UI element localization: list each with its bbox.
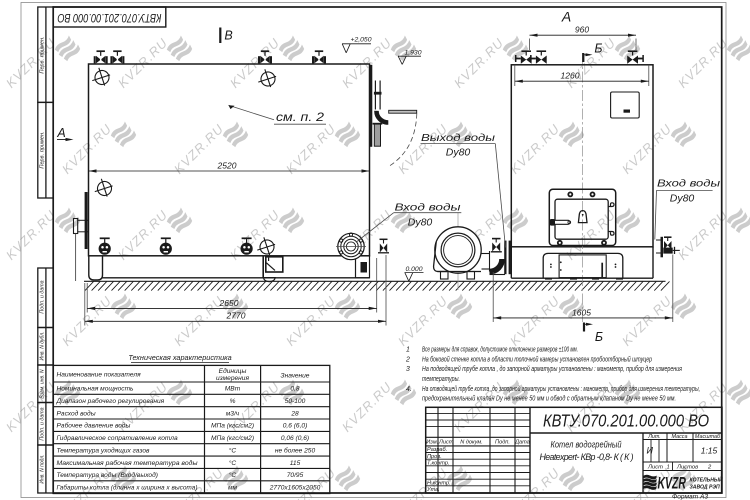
svg-text:%: %	[230, 398, 236, 405]
svg-text:Подп.: Подп.	[495, 440, 510, 446]
svg-text:0.000: 0.000	[405, 266, 422, 273]
svg-text:28: 28	[290, 410, 299, 417]
svg-text:960: 960	[575, 25, 589, 35]
svg-text:Единицы: Единицы	[219, 367, 247, 375]
svg-text:Лит.: Лит.	[647, 434, 661, 440]
svg-text:КВТУ.070.201.00.000 ВО: КВТУ.070.201.00.000 ВО	[57, 11, 161, 23]
svg-text:Dy80: Dy80	[408, 217, 433, 229]
svg-text:м3/ч: м3/ч	[226, 410, 240, 417]
svg-text:Диапазон рабочего регулировани: Диапазон рабочего регулирования	[56, 397, 165, 405]
svg-text:Масса: Масса	[672, 434, 688, 440]
svg-text:температуры.: температуры.	[422, 376, 460, 383]
svg-text:2: 2	[405, 356, 410, 363]
svg-text:2770х1605х2050: 2770х1605х2050	[269, 485, 321, 492]
svg-text:И: И	[647, 446, 654, 456]
svg-text:0,06 (0,6): 0,06 (0,6)	[281, 435, 309, 442]
svg-text:МВт: МВт	[225, 386, 241, 393]
svg-text:А: А	[56, 126, 65, 140]
svg-text:Наименование показателя: Наименование показателя	[57, 371, 142, 378]
svg-text:Подп. и дата: Подп. и дата	[40, 407, 46, 440]
svg-text:Подп. и дата: Подп. и дата	[40, 280, 46, 313]
svg-text:Котел водогрейный: Котел водогрейный	[551, 439, 622, 449]
svg-text:Б: Б	[595, 330, 603, 344]
svg-text:KVZR: KVZR	[658, 474, 687, 493]
svg-text:1: 1	[667, 464, 670, 470]
svg-text:°С: °С	[229, 447, 237, 455]
svg-text:2650: 2650	[219, 298, 239, 308]
svg-text:Максимальная рабочая температу: Максимальная рабочая температура воды	[57, 459, 198, 467]
svg-text:мм: мм	[228, 485, 238, 492]
svg-text:В: В	[224, 29, 232, 43]
svg-text:Инв. N дубл.: Инв. N дубл.	[40, 332, 46, 361]
svg-text:Вход воды: Вход воды	[395, 201, 461, 213]
svg-text:На боковой стенке котла в обла: На боковой стенке котла в области топочн…	[422, 355, 652, 363]
svg-text:измерения: измерения	[216, 375, 249, 382]
svg-text:Пров.: Пров.	[427, 454, 442, 460]
svg-text:Температура воды (Вход/выход): Температура воды (Вход/выход)	[57, 471, 158, 479]
svg-text:КВТУ.070.201.00.000 ВО: КВТУ.070.201.00.000 ВО	[543, 411, 709, 431]
svg-text:50-100: 50-100	[285, 398, 306, 405]
svg-text:Гидравлическое сопративление к: Гидравлическое сопративление котла	[57, 434, 178, 442]
svg-text:0,6 (6,0): 0,6 (6,0)	[283, 423, 308, 430]
svg-text:Масштаб: Масштаб	[695, 434, 721, 440]
svg-text:°С: °С	[229, 471, 237, 479]
svg-text:Лист: Лист	[438, 440, 454, 446]
svg-text:Изм.: Изм.	[426, 440, 438, 446]
svg-text:МПа (кгс/см2): МПа (кгс/см2)	[211, 435, 254, 442]
svg-text:Номинальная мощность: Номинальная мощность	[57, 386, 135, 393]
svg-text:Значение: Значение	[281, 372, 310, 379]
svg-text:Вход воды: Вход воды	[657, 177, 720, 189]
svg-text:2520: 2520	[217, 161, 237, 171]
svg-text:Б: Б	[594, 42, 602, 56]
svg-text:115: 115	[290, 460, 301, 467]
svg-text:см. п. 2: см. п. 2	[276, 112, 325, 124]
svg-text:70/95: 70/95	[287, 472, 304, 479]
svg-text:1:15: 1:15	[701, 446, 718, 456]
svg-text:1260: 1260	[561, 71, 580, 81]
svg-text:предохранительный клапан Dy н: предохранительный клапан Dy не менее 50 …	[422, 395, 676, 403]
svg-text:КОТЕЛЬНЫЙ: КОТЕЛЬНЫЙ	[690, 475, 723, 483]
svg-text:Н.контр.: Н.контр.	[427, 481, 451, 487]
svg-text:Температура уходящих газов: Температура уходящих газов	[57, 447, 150, 455]
svg-text:Heatexpert- КВр -0,8- К ( К ): Heatexpert- КВр -0,8- К ( К )	[540, 452, 634, 462]
svg-text:Выход воды: Выход воды	[421, 132, 495, 144]
svg-text:Все размеры для справок, допус: Все размеры для справок, допустимое откл…	[422, 346, 578, 354]
svg-text:Разраб.: Разраб.	[427, 447, 447, 453]
svg-text:Формат А3: Формат А3	[672, 494, 708, 500]
svg-text:Утв.: Утв.	[426, 487, 440, 493]
svg-text:4.: 4.	[406, 386, 412, 393]
svg-text:0,8: 0,8	[290, 386, 299, 393]
svg-text:На отводящей трубе котла ,до з: На отводящей трубе котла ,до запорной ар…	[422, 385, 700, 393]
svg-text:Техническая характеристика: Техническая характеристика	[128, 353, 231, 362]
svg-text:1605: 1605	[572, 307, 591, 317]
svg-text:На подводящей трубе котла ,: На подводящей трубе котла , до запорной …	[422, 365, 682, 373]
svg-text:Dy80: Dy80	[670, 193, 695, 205]
svg-text:не более 250: не более 250	[275, 447, 316, 455]
svg-text:Листов: Листов	[676, 464, 698, 470]
svg-text:3: 3	[406, 366, 410, 373]
svg-text:Рабочее давление воды: Рабочее давление воды	[57, 422, 131, 430]
svg-text:Дата: Дата	[514, 440, 530, 446]
svg-text:1: 1	[406, 347, 410, 354]
svg-text:Взам. инв. N: Взам. инв. N	[40, 369, 46, 399]
svg-text:Расход воды: Расход воды	[57, 409, 96, 417]
svg-text:Лист: Лист	[647, 464, 663, 470]
svg-text:Dy80: Dy80	[446, 147, 471, 159]
svg-text:°С: °С	[229, 459, 237, 467]
svg-text:Перв. примен.: Перв. примен.	[40, 36, 46, 73]
svg-text:1,930: 1,930	[404, 50, 421, 57]
svg-text:ЗАВОД РЭП: ЗАВОД РЭП	[690, 484, 721, 490]
svg-text:Перв. примен.: Перв. примен.	[40, 131, 46, 168]
svg-text:2770: 2770	[226, 311, 246, 321]
svg-text:Инв. N подл.: Инв. N подл.	[40, 454, 46, 483]
svg-text:Т.контр.: Т.контр.	[427, 461, 450, 467]
svg-text:N докум.: N докум.	[460, 440, 483, 446]
svg-text:+2,050: +2,050	[351, 37, 372, 44]
svg-text:Габариты котла (длинна х шири: Габариты котла (длинна х ширина х высота…	[57, 484, 198, 492]
svg-text:А: А	[561, 9, 571, 25]
svg-text:МПа (кгс/см2): МПа (кгс/см2)	[211, 423, 254, 430]
